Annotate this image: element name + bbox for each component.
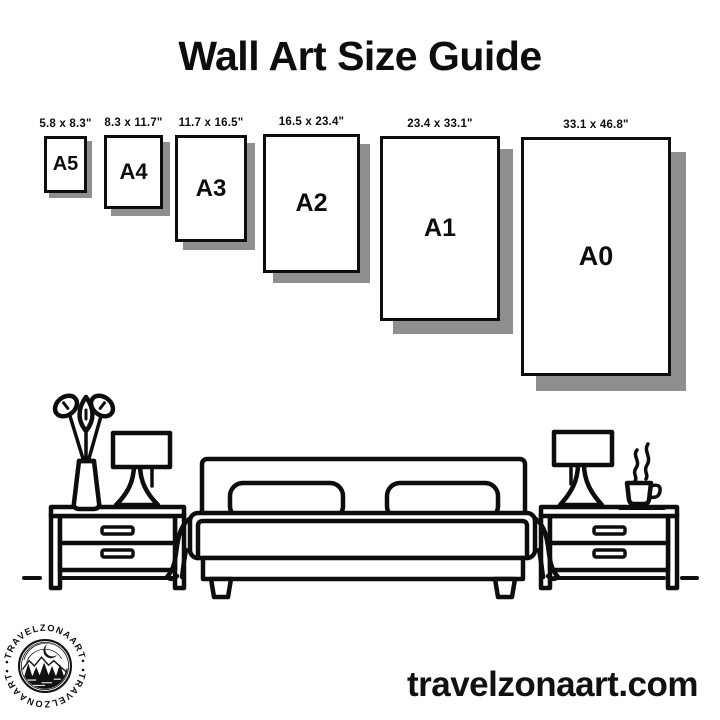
size-group-a3: 11.7 x 16.5" A3	[175, 135, 247, 242]
size-dimensions-a0: 33.1 x 46.8"	[563, 119, 628, 131]
lamp-shade	[554, 432, 612, 465]
size-dimensions-a4: 8.3 x 11.7"	[104, 117, 162, 129]
drawer-handle	[594, 527, 625, 534]
size-group-a0: 33.1 x 46.8" A0	[521, 137, 671, 376]
bed-leg	[211, 579, 231, 597]
nightstand-right	[541, 507, 677, 588]
steam	[635, 444, 649, 481]
brand-logo-badge: •TRAVELZONAART• •TRAVELZONAART•	[1, 622, 89, 710]
page-title: Wall Art Size Guide	[0, 33, 720, 80]
size-code-label: A4	[119, 159, 147, 185]
drawer-handle	[102, 527, 133, 534]
size-dimensions-a5: 5.8 x 8.3"	[39, 118, 91, 130]
size-frame-a1: A1	[380, 136, 500, 321]
drawer-handle	[102, 550, 133, 557]
size-code-label: A1	[424, 214, 456, 243]
wall-art-size-guide: Wall Art Size Guide 5.8 x 8.3" A5 8.3 x …	[0, 0, 720, 720]
size-code-label: A5	[53, 153, 79, 176]
size-frame-a0: A0	[521, 137, 671, 376]
bed-leg	[495, 579, 515, 597]
size-code-label: A3	[196, 175, 227, 203]
bed	[167, 459, 558, 597]
size-dimensions-a3: 11.7 x 16.5"	[179, 117, 244, 129]
size-frame-a5: A5	[44, 136, 87, 193]
size-group-a2: 16.5 x 23.4" A2	[263, 134, 360, 273]
nightstand-left	[51, 507, 184, 588]
lamp-shade	[113, 433, 170, 467]
coffee-cup	[620, 444, 664, 508]
size-frame-a4: A4	[104, 135, 163, 209]
table-lamp-left	[113, 433, 170, 505]
size-group-a4: 8.3 x 11.7" A4	[104, 135, 163, 209]
size-code-label: A0	[579, 241, 614, 272]
website-url: travelzonaart.com	[404, 665, 701, 705]
drawer-handle	[594, 550, 625, 557]
size-dimensions-a1: 23.4 x 33.1"	[407, 118, 472, 130]
size-code-label: A2	[296, 189, 328, 218]
table-lamp-right	[554, 432, 612, 505]
size-frame-a3: A3	[175, 135, 247, 242]
size-group-a1: 23.4 x 33.1" A1	[380, 136, 500, 321]
bedroom-illustration	[0, 380, 720, 605]
bed-base	[203, 558, 523, 579]
flower-vase	[51, 392, 117, 509]
size-frame-a2: A2	[263, 134, 360, 273]
size-group-a5: 5.8 x 8.3" A5	[44, 136, 87, 193]
size-dimensions-a2: 16.5 x 23.4"	[279, 116, 344, 128]
